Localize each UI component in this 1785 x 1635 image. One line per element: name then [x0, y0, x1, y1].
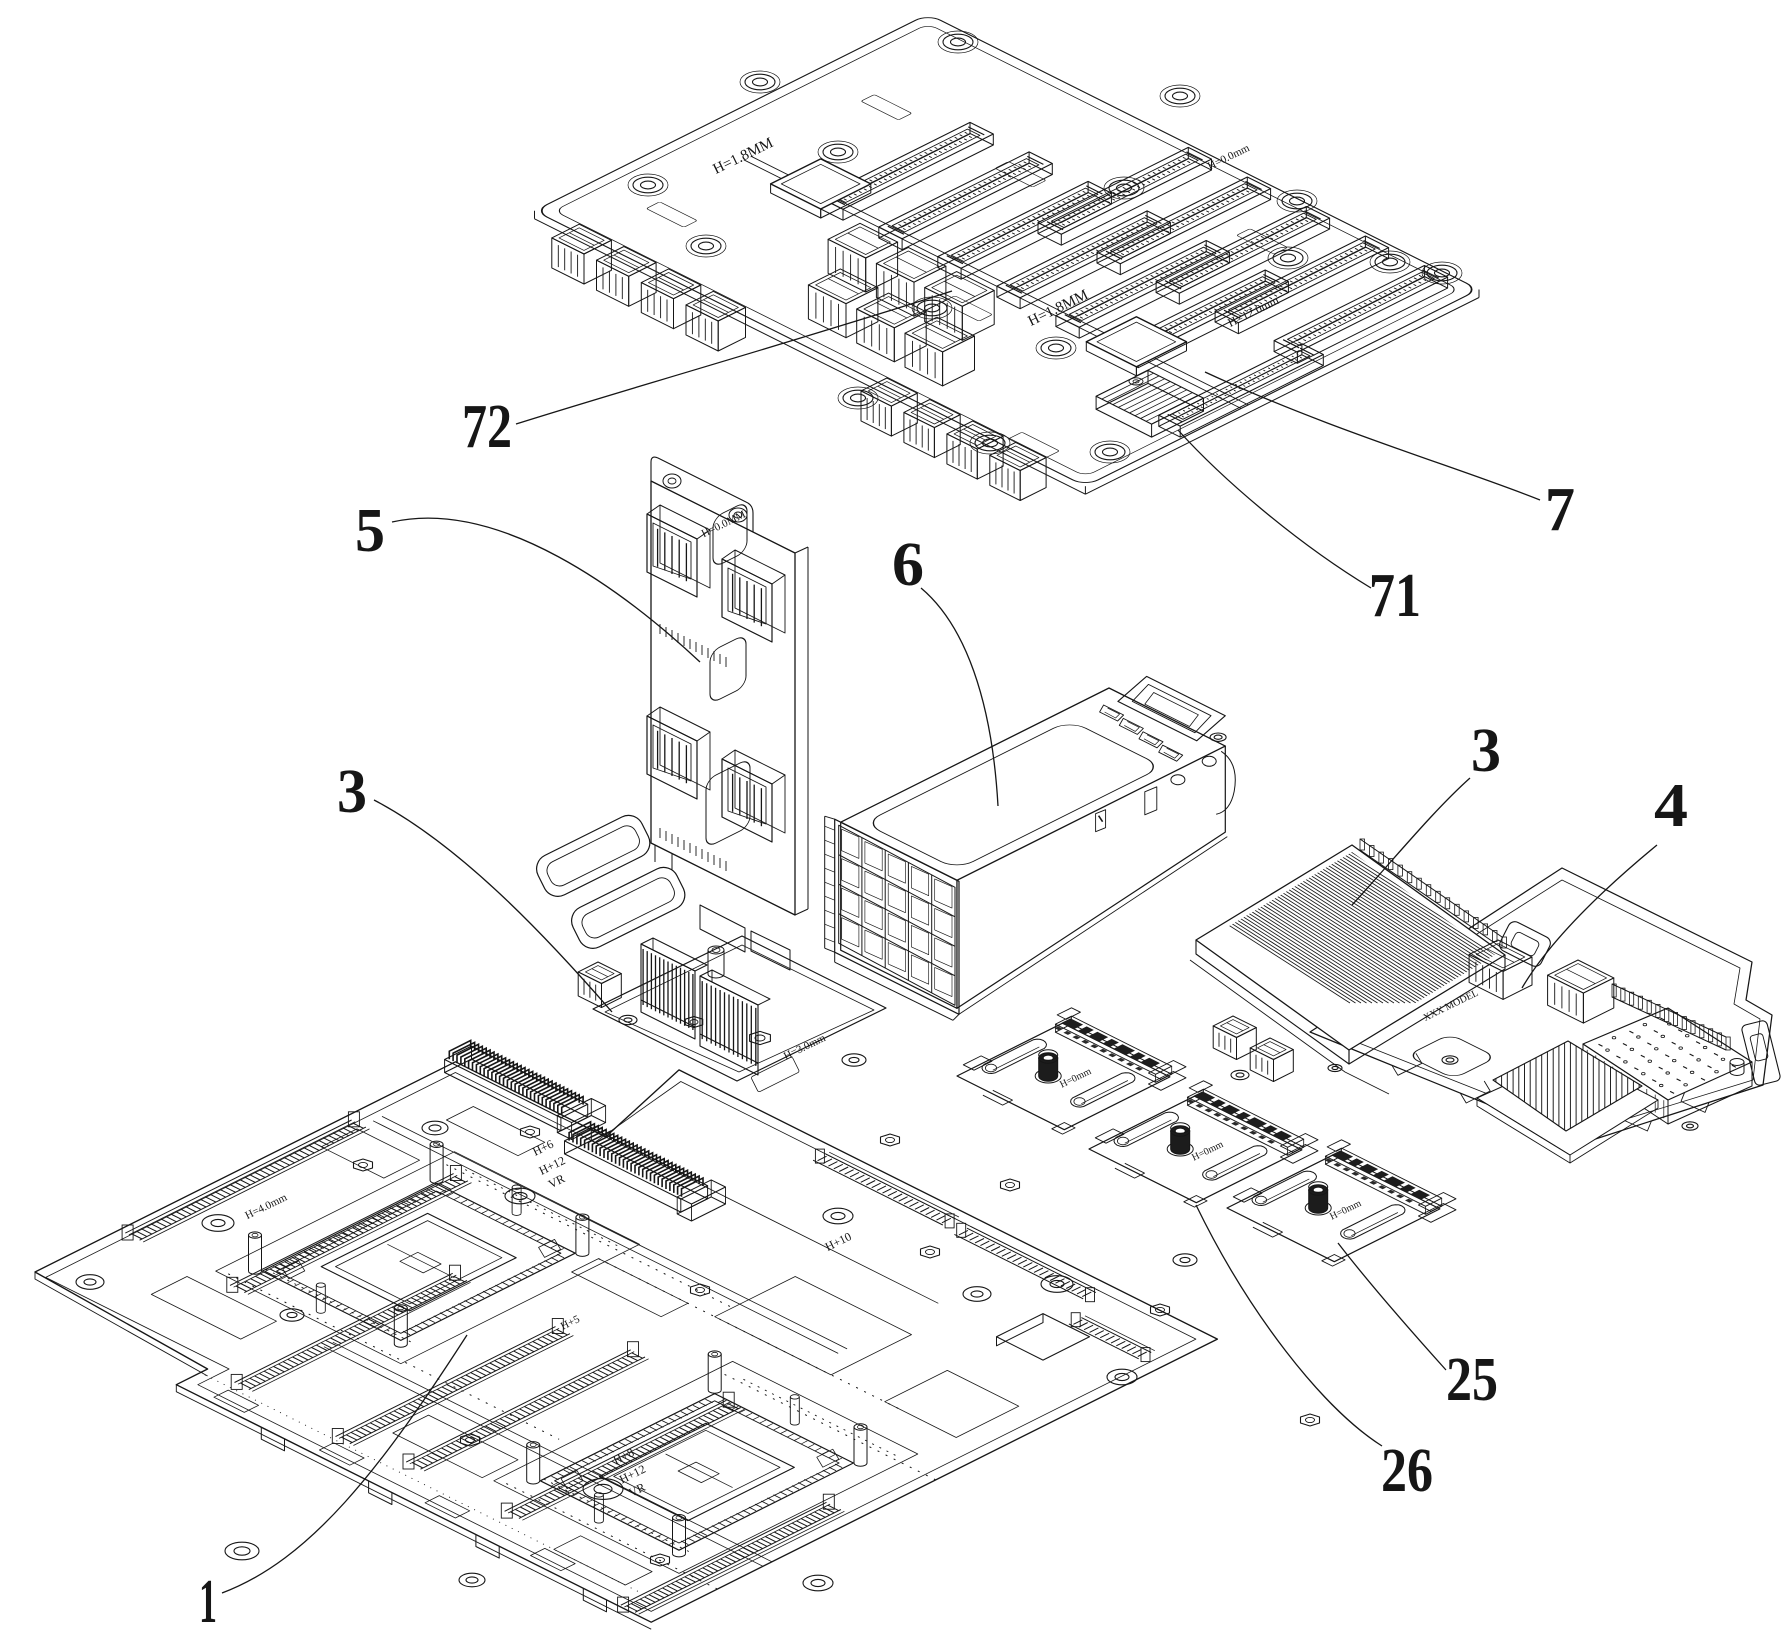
svg-text:1: 1: [199, 1568, 217, 1635]
svg-text:5: 5: [355, 497, 385, 565]
svg-text:6: 6: [892, 531, 924, 599]
svg-text:7: 7: [1545, 476, 1575, 544]
svg-text:26: 26: [1381, 1437, 1433, 1505]
svg-text:72: 72: [462, 393, 512, 461]
svg-text:71: 71: [1369, 562, 1421, 630]
svg-text:25: 25: [1446, 1346, 1498, 1414]
svg-text:3: 3: [1471, 717, 1501, 785]
svg-text:3: 3: [337, 758, 367, 826]
svg-text:4: 4: [1654, 772, 1688, 840]
